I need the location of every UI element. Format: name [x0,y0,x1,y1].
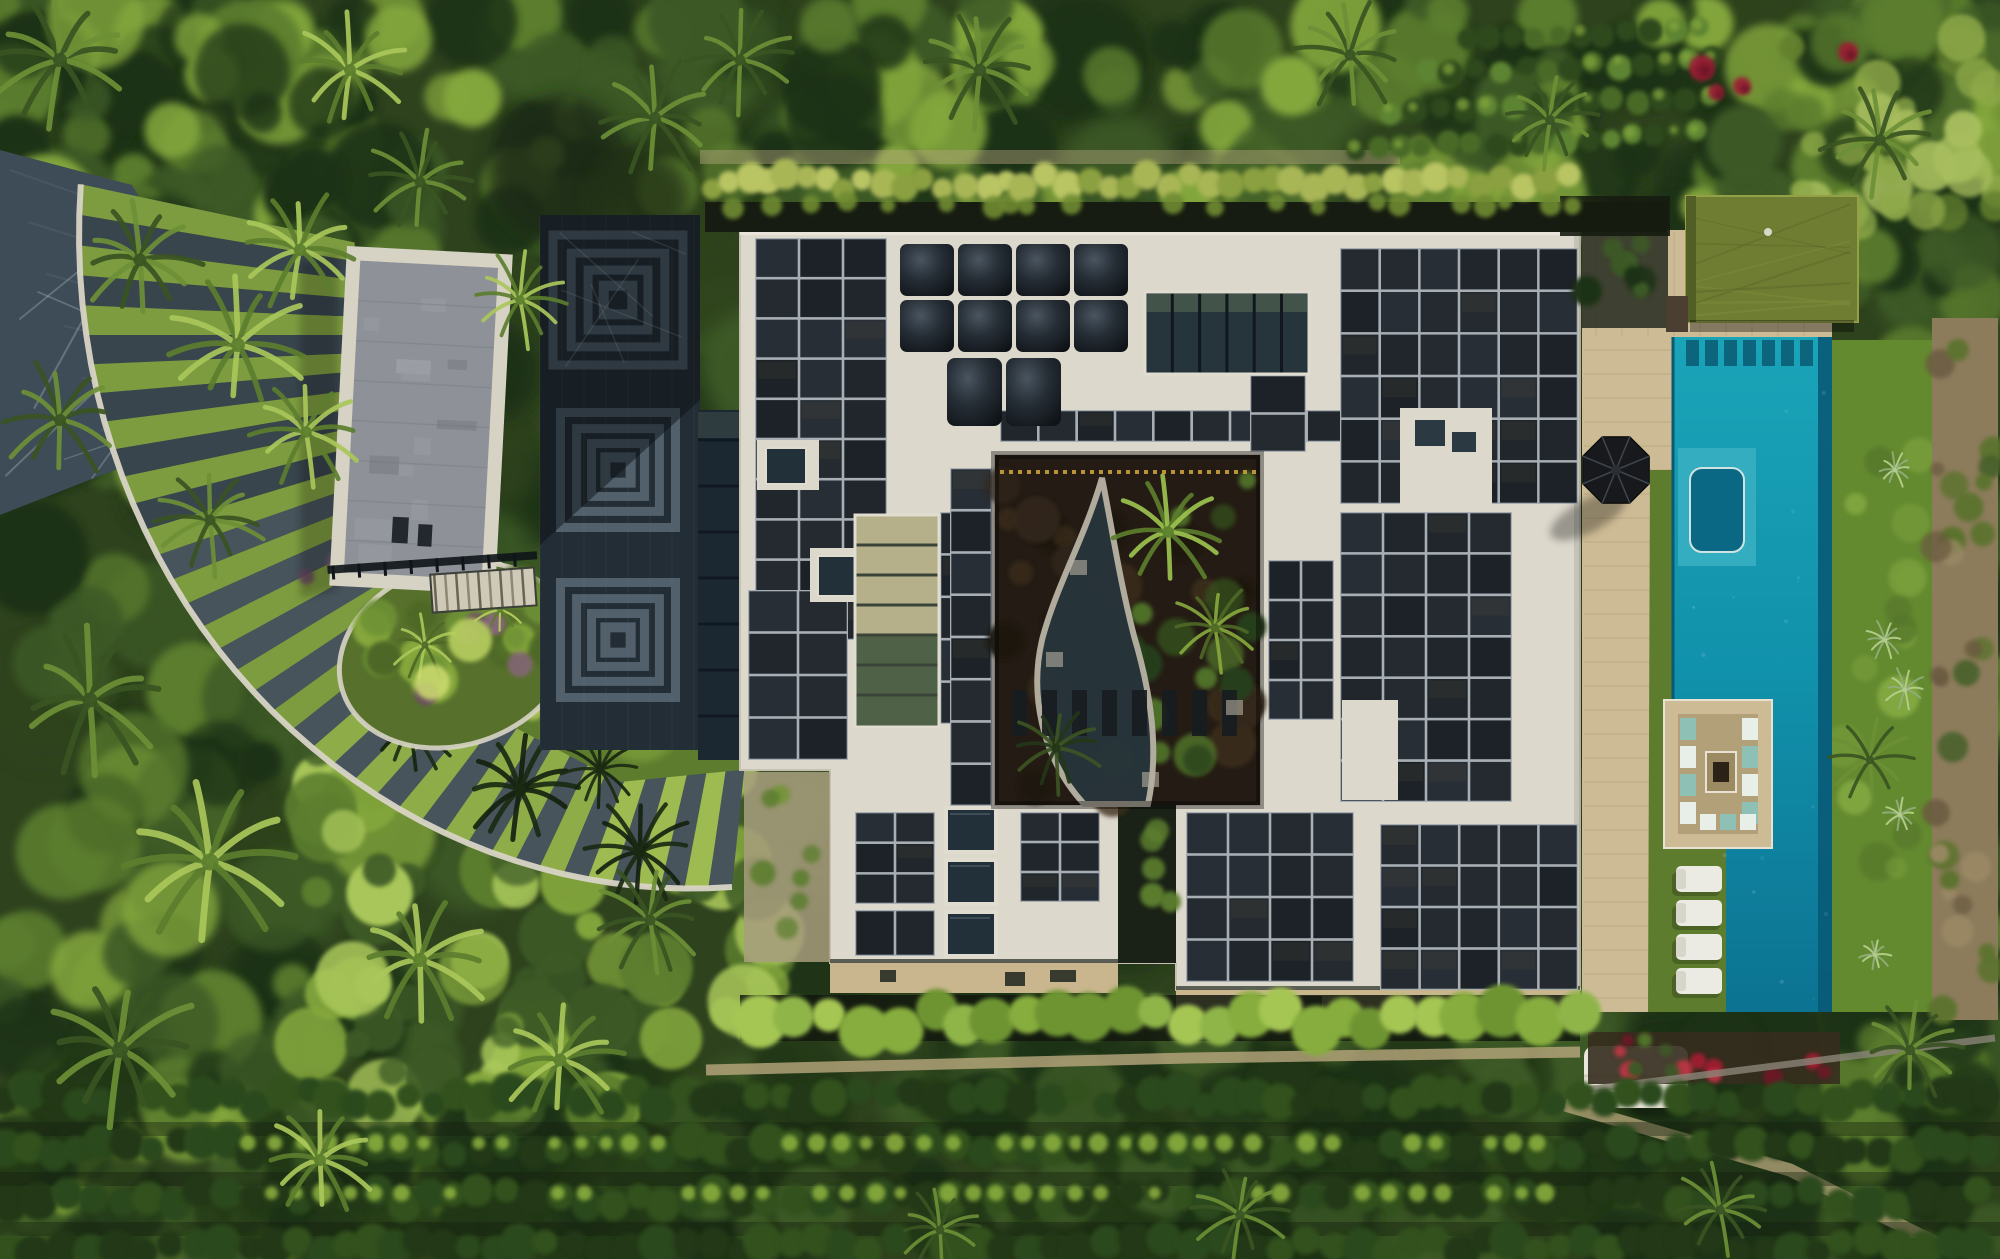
aerial-photo-canvas [0,0,2000,1259]
aerial-photo: Top-down aerial drone photograph of a mo… [0,0,2000,1259]
garage-roof [300,246,513,598]
central-courtyard [984,455,1266,817]
scrubland [1920,318,2000,1025]
cabana-green-roof [1666,196,1858,332]
